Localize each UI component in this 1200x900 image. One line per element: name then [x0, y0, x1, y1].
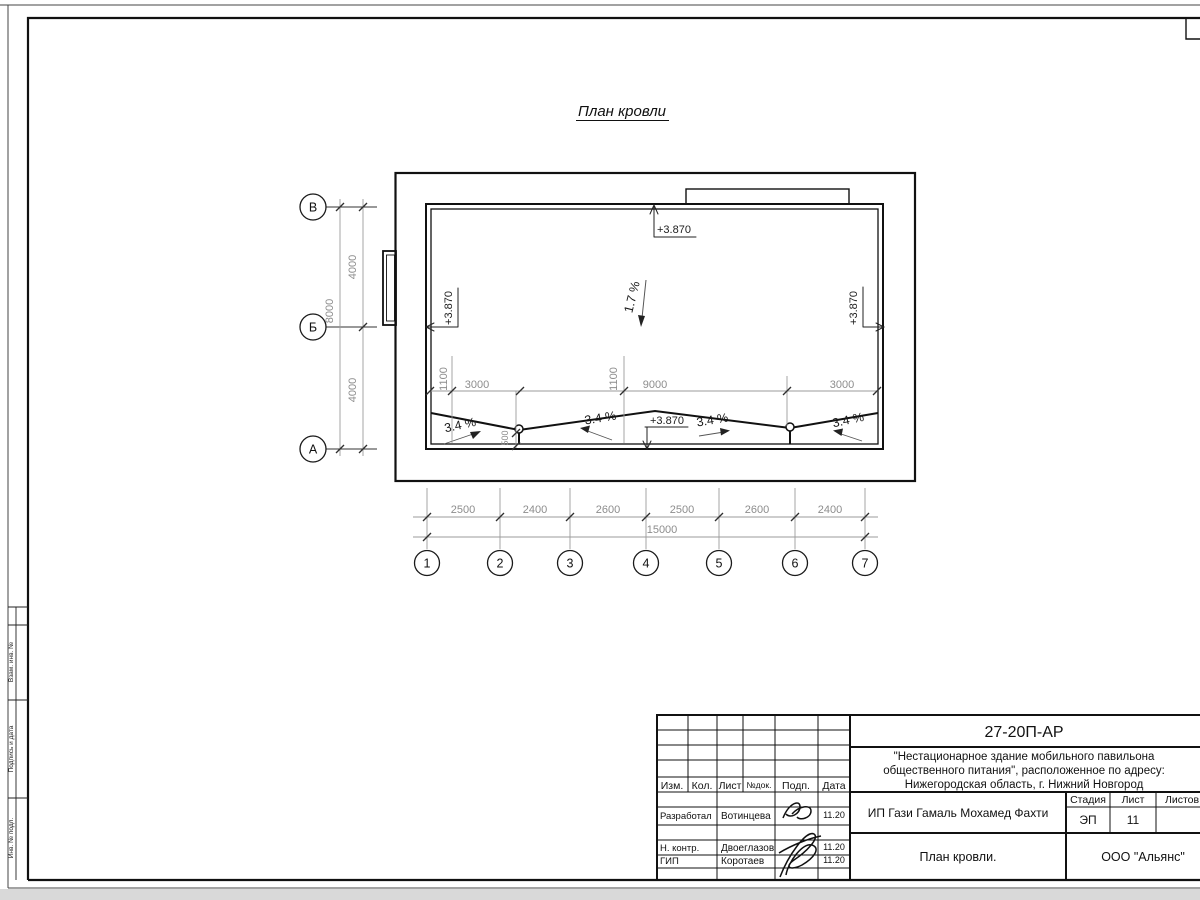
dim-span: 2600 — [745, 504, 769, 516]
dim-span: 2500 — [451, 504, 475, 516]
row3-name: Коротаев — [721, 856, 764, 867]
dim-total: 15000 — [647, 524, 678, 536]
dim-4000: 4000 — [347, 378, 359, 402]
inner-dimensions: 3000 9000 3000 1100 1100 500 — [426, 356, 881, 450]
drawing-sheet: Взам. инв. № Подпись и дата Инв. № подл.… — [0, 0, 1200, 900]
dim-8000: 8000 — [324, 299, 336, 323]
row1-date: 11.20 — [823, 810, 845, 820]
signature-scribble — [783, 803, 811, 819]
dim-span: 2400 — [818, 504, 842, 516]
row2-name: Двоеглазов — [721, 843, 774, 854]
row3-role: ГИП — [660, 856, 679, 867]
dim-1100: 1100 — [608, 367, 620, 391]
row3-date: 11.20 — [823, 855, 845, 865]
row2-role: Н. контр. — [660, 843, 699, 854]
stamp-label-inv: Инв. № подл. — [8, 818, 15, 859]
sheet-shadow — [0, 889, 1200, 900]
row2-date: 11.20 — [823, 842, 845, 852]
axis-label: 4 — [643, 557, 650, 571]
stamp-label-podpis: Подпись и дата — [8, 725, 15, 772]
dim-9000: 9000 — [643, 379, 667, 391]
stage-value: ЭП — [1079, 813, 1096, 827]
slope-arrow-shaft — [585, 430, 612, 440]
row1-name: Вотинцева — [721, 811, 771, 822]
elevation-leader-peak — [643, 427, 688, 449]
left-axes: 4000 4000 8000 В Б А — [300, 194, 377, 462]
dim-span: 2400 — [523, 504, 547, 516]
slope-arrow-head — [470, 431, 481, 439]
cross-slope-label: 3.4 % — [695, 411, 729, 430]
company-name: ООО "Альянс" — [1101, 850, 1185, 864]
page-title: План кровли — [578, 103, 667, 120]
dim-span: 2500 — [670, 504, 694, 516]
sheet-value: 11 — [1127, 813, 1140, 827]
parapet-top — [686, 189, 849, 204]
elevation-value: +3.870 — [657, 224, 691, 236]
axis-label: Б — [309, 321, 317, 335]
project-name-line1: "Нестационарное здание мобильного павиль… — [894, 751, 1155, 763]
elevation-value: +3.870 — [443, 291, 455, 325]
cross-slope-1: 3.4 % — [443, 415, 481, 444]
main-slope-label: 1.7 % — [621, 280, 642, 314]
sheet-label: Лист — [1122, 794, 1145, 806]
axis-label: 3 — [567, 557, 574, 571]
col-kol: Кол. — [692, 780, 713, 792]
axis-label: 2 — [497, 557, 504, 571]
axis-label: 5 — [716, 557, 723, 571]
elevation-value: +3.870 — [650, 415, 684, 427]
col-podp: Подп. — [782, 780, 810, 792]
extension-lines — [427, 488, 865, 549]
dim-4000: 4000 — [347, 255, 359, 279]
title-block: Изм. Кол. Лист №док. Подп. Дата Разработ… — [657, 715, 1200, 880]
row1-role: Разработал — [660, 811, 712, 822]
roof-plan — [383, 173, 915, 481]
stage-label: Стадия — [1070, 794, 1106, 806]
side-stamp: Взам. инв. № Подпись и дата Инв. № подл. — [8, 607, 28, 880]
stamp-label-vzam: Взам. инв. № — [8, 642, 15, 682]
axis-label: В — [309, 201, 317, 215]
client-name: ИП Гази Гамаль Мохамед Фахти — [868, 806, 1049, 820]
dimension-ticks — [336, 203, 367, 453]
dim-500: 500 — [500, 430, 510, 445]
project-name-line3: Нижегородская область, г. Нижний Новгоро… — [905, 779, 1144, 791]
axis-label: А — [309, 443, 318, 457]
dim-1100: 1100 — [438, 367, 450, 391]
entry-canopy-inner — [387, 255, 395, 321]
frame-corner-box — [1186, 18, 1200, 39]
dim-span: 2600 — [596, 504, 620, 516]
bottom-axes: 2500 2400 2600 2500 2600 2400 15000 1 2 … — [413, 488, 878, 576]
cross-slope-2: 3.4 % — [580, 409, 617, 440]
dim-3000: 3000 — [465, 379, 489, 391]
slope-arrow-head — [720, 428, 730, 436]
elevation-value: +3.870 — [848, 291, 860, 325]
roof-edge-inner — [431, 209, 878, 444]
sheets-label: Листов — [1165, 794, 1200, 806]
document-number: 27-20П-АР — [984, 724, 1063, 741]
roof-edge-outer — [426, 204, 883, 449]
project-name-line2: общественного питания", расположенное по… — [883, 765, 1165, 777]
cross-slope-label: 3.4 % — [831, 410, 865, 430]
cross-slope-label: 3.4 % — [583, 409, 617, 428]
elevation-marks: +3.870 +3.870 +3.870 +3.870 — [426, 205, 884, 449]
cross-slope-3: 3.4 % — [695, 411, 730, 436]
cross-slope-4: 3.4 % — [831, 410, 865, 441]
axis-label: 6 — [792, 557, 799, 571]
elevation-leader-right — [863, 287, 884, 331]
slope-arrow-head — [638, 315, 645, 327]
col-ndoc: №док. — [747, 780, 772, 790]
col-izm: Изм. — [661, 780, 684, 792]
drawing-title: План кровли — [576, 103, 669, 121]
slope-arrow-shaft — [642, 280, 646, 318]
dim-3000: 3000 — [830, 379, 854, 391]
col-data: Дата — [822, 780, 845, 792]
slope-arrow-shaft — [699, 432, 724, 436]
drawing-name: План кровли. — [919, 850, 996, 864]
entry-canopy — [383, 251, 396, 325]
col-list: Лист — [719, 780, 742, 792]
axis-label: 7 — [862, 557, 869, 571]
axis-label: 1 — [424, 557, 431, 571]
